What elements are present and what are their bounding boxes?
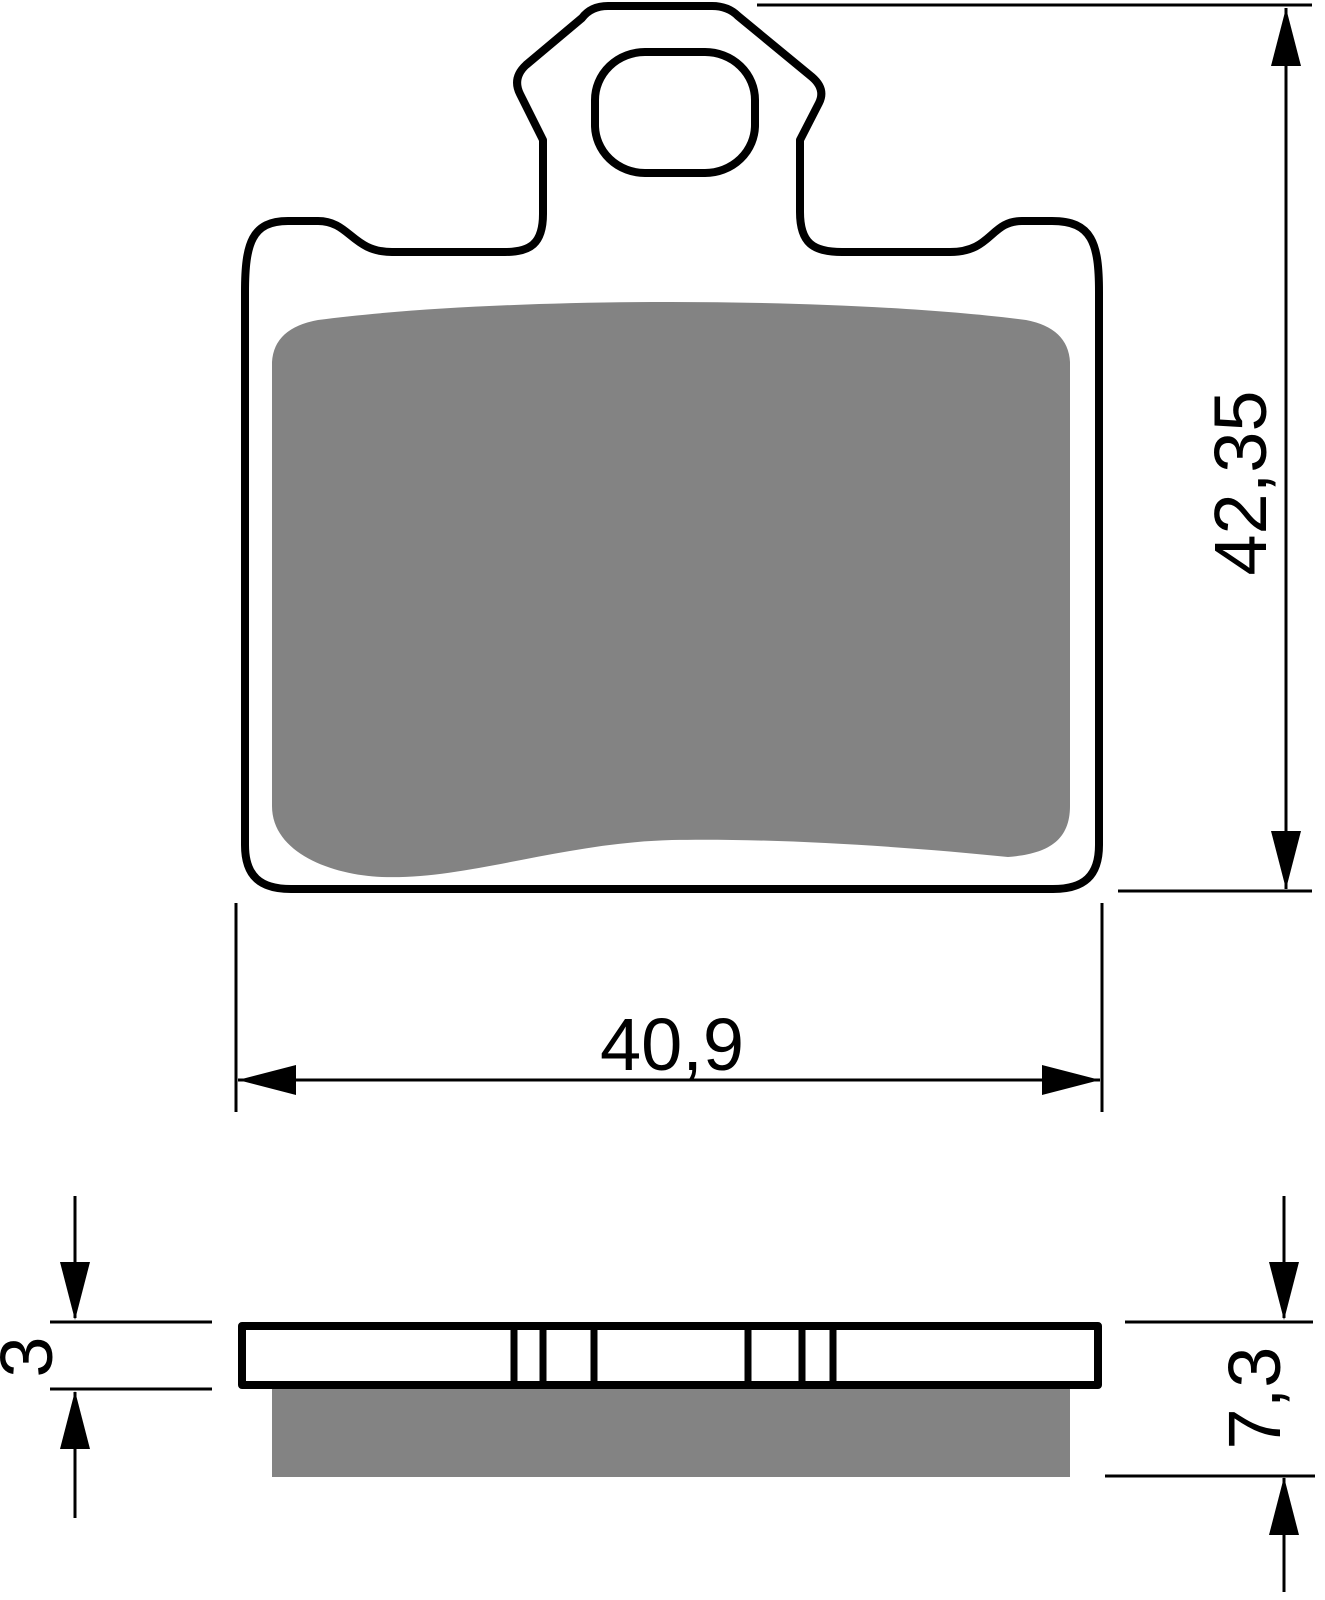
dimension-total-thickness: 7,3 — [1105, 1196, 1315, 1592]
brake-pad-drawing: 42,35 40,9 3 7, — [0, 0, 1325, 1600]
technical-drawing-page: 42,35 40,9 3 7, — [0, 0, 1325, 1600]
arrowhead-down-icon — [60, 1262, 90, 1320]
dim-label-width: 40,9 — [600, 1003, 744, 1086]
arrowhead-right-icon — [1042, 1065, 1100, 1095]
arrowhead-down-icon — [1269, 1262, 1299, 1320]
arrowhead-down-icon — [1271, 831, 1301, 889]
dim-label-total: 7,3 — [1213, 1347, 1296, 1450]
front-view — [245, 6, 1099, 889]
arrowhead-up-icon — [1271, 8, 1301, 66]
friction-material-side — [272, 1385, 1070, 1477]
side-view — [242, 1326, 1098, 1477]
dim-label-plate: 3 — [0, 1336, 68, 1377]
dim-label-height: 42,35 — [1199, 390, 1282, 575]
dimension-plate-thickness: 3 — [0, 1196, 212, 1518]
dimension-width: 40,9 — [236, 903, 1102, 1112]
arrowhead-up-icon — [1269, 1477, 1299, 1535]
friction-material-front — [272, 302, 1070, 877]
arrowhead-left-icon — [238, 1065, 296, 1095]
tab-hole — [595, 52, 755, 173]
backing-plate-side — [242, 1326, 1098, 1385]
arrowhead-up-icon — [60, 1391, 90, 1449]
